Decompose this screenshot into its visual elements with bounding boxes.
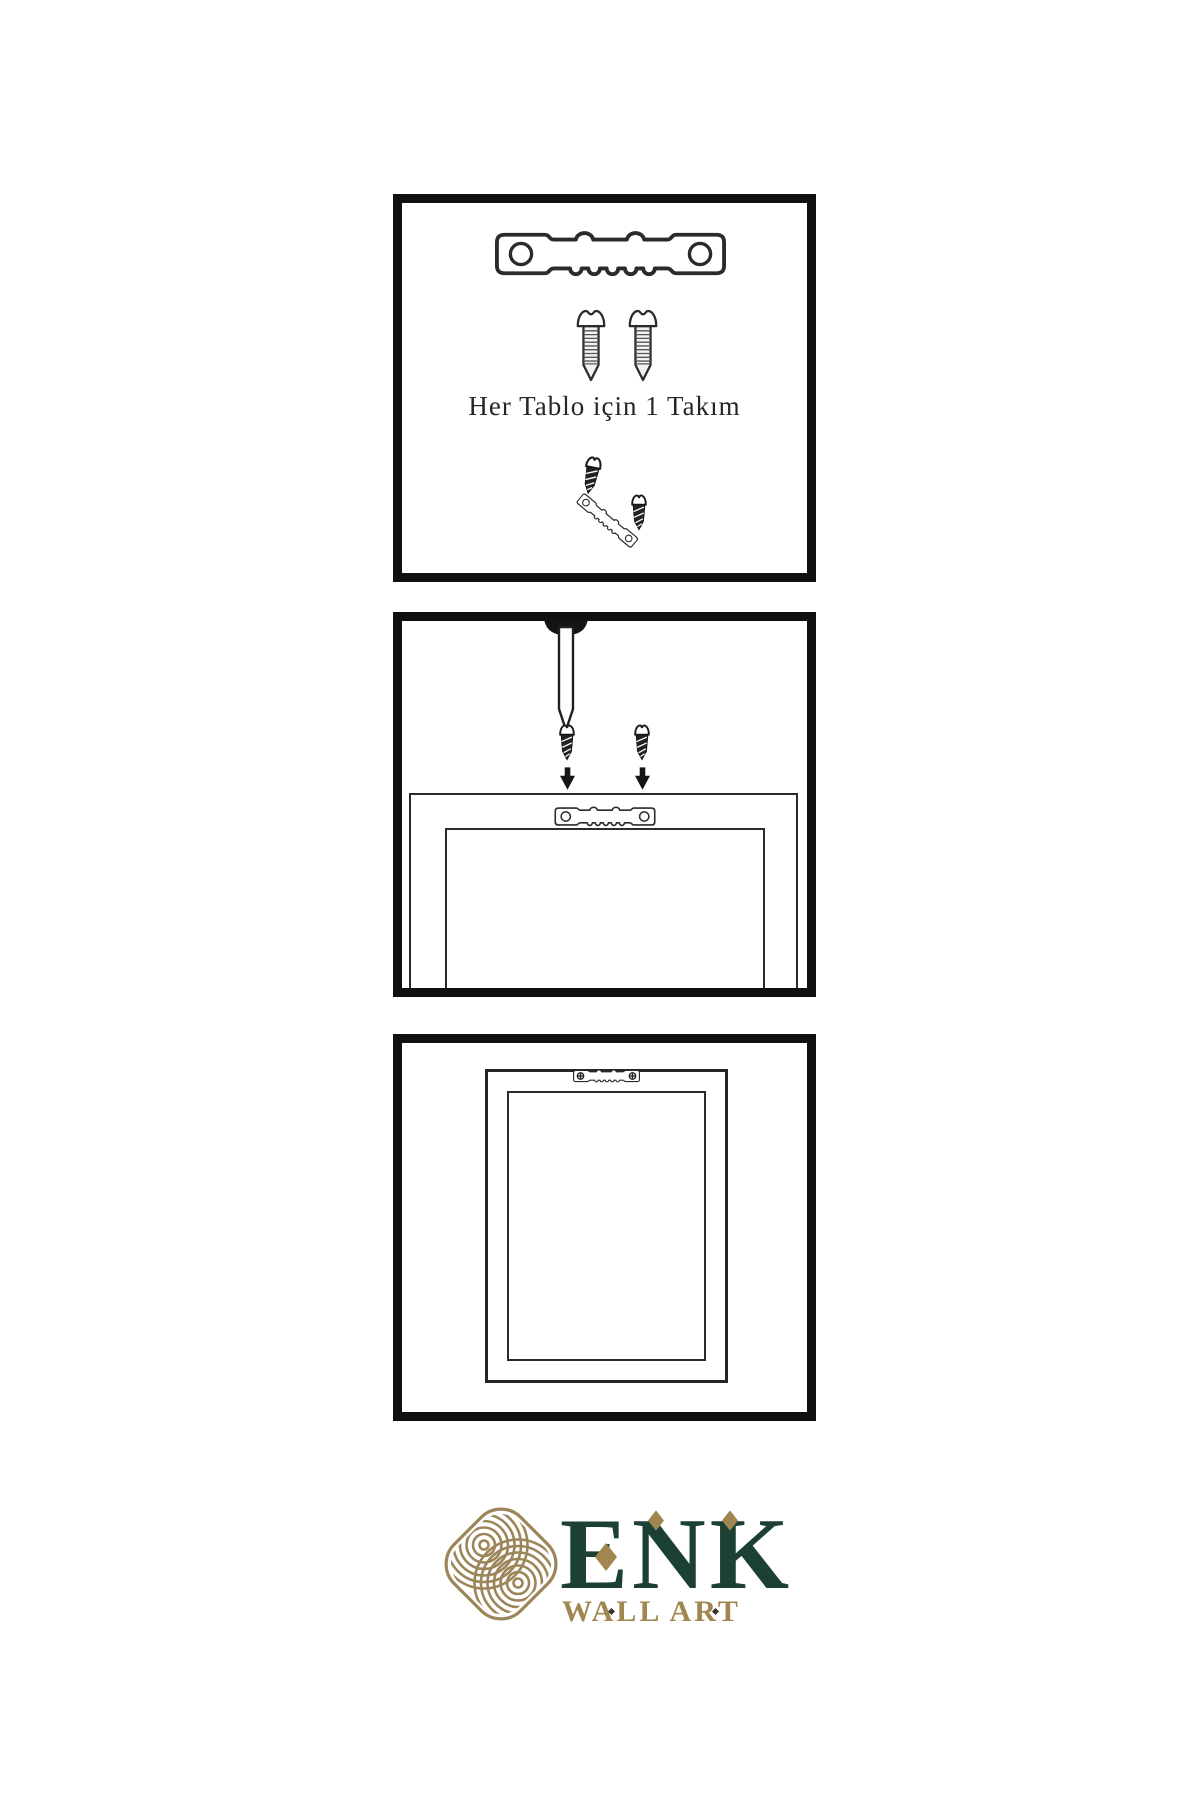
gold-diamond-icon bbox=[648, 1510, 664, 1531]
short-screw-icon bbox=[632, 723, 652, 762]
kit-caption: Her Tablo için 1 Takım bbox=[402, 391, 807, 422]
short-screw-icon bbox=[629, 493, 649, 532]
gold-diamond-icon bbox=[595, 1543, 617, 1571]
down-arrow-icon bbox=[560, 767, 575, 790]
mounting-screw-icon bbox=[626, 306, 660, 384]
hanging-instruction-sheet: Her Tablo için 1 Takım bbox=[0, 0, 1200, 1800]
sawtooth-hanger-icon bbox=[495, 223, 726, 285]
short-screw-icon bbox=[577, 453, 605, 497]
panel-mounting-step bbox=[393, 612, 816, 997]
short-screw-icon bbox=[557, 723, 577, 762]
gold-diamond-icon bbox=[722, 1510, 738, 1531]
frame-back-inner-outline bbox=[445, 828, 765, 988]
mounting-screw-icon bbox=[574, 306, 608, 384]
down-arrow-icon bbox=[635, 767, 650, 790]
frame-back-inner-outline bbox=[507, 1091, 706, 1361]
knot-logo-icon bbox=[437, 1500, 565, 1628]
sawtooth-hanger-icon bbox=[554, 803, 656, 830]
mounted-sawtooth-hanger-icon bbox=[573, 1067, 640, 1085]
wall-nail-icon bbox=[543, 619, 589, 733]
panel-hardware-kit: Her Tablo için 1 Takım bbox=[393, 194, 816, 582]
frame-back-outline bbox=[485, 1069, 728, 1383]
panel-hung-frame bbox=[393, 1034, 816, 1421]
